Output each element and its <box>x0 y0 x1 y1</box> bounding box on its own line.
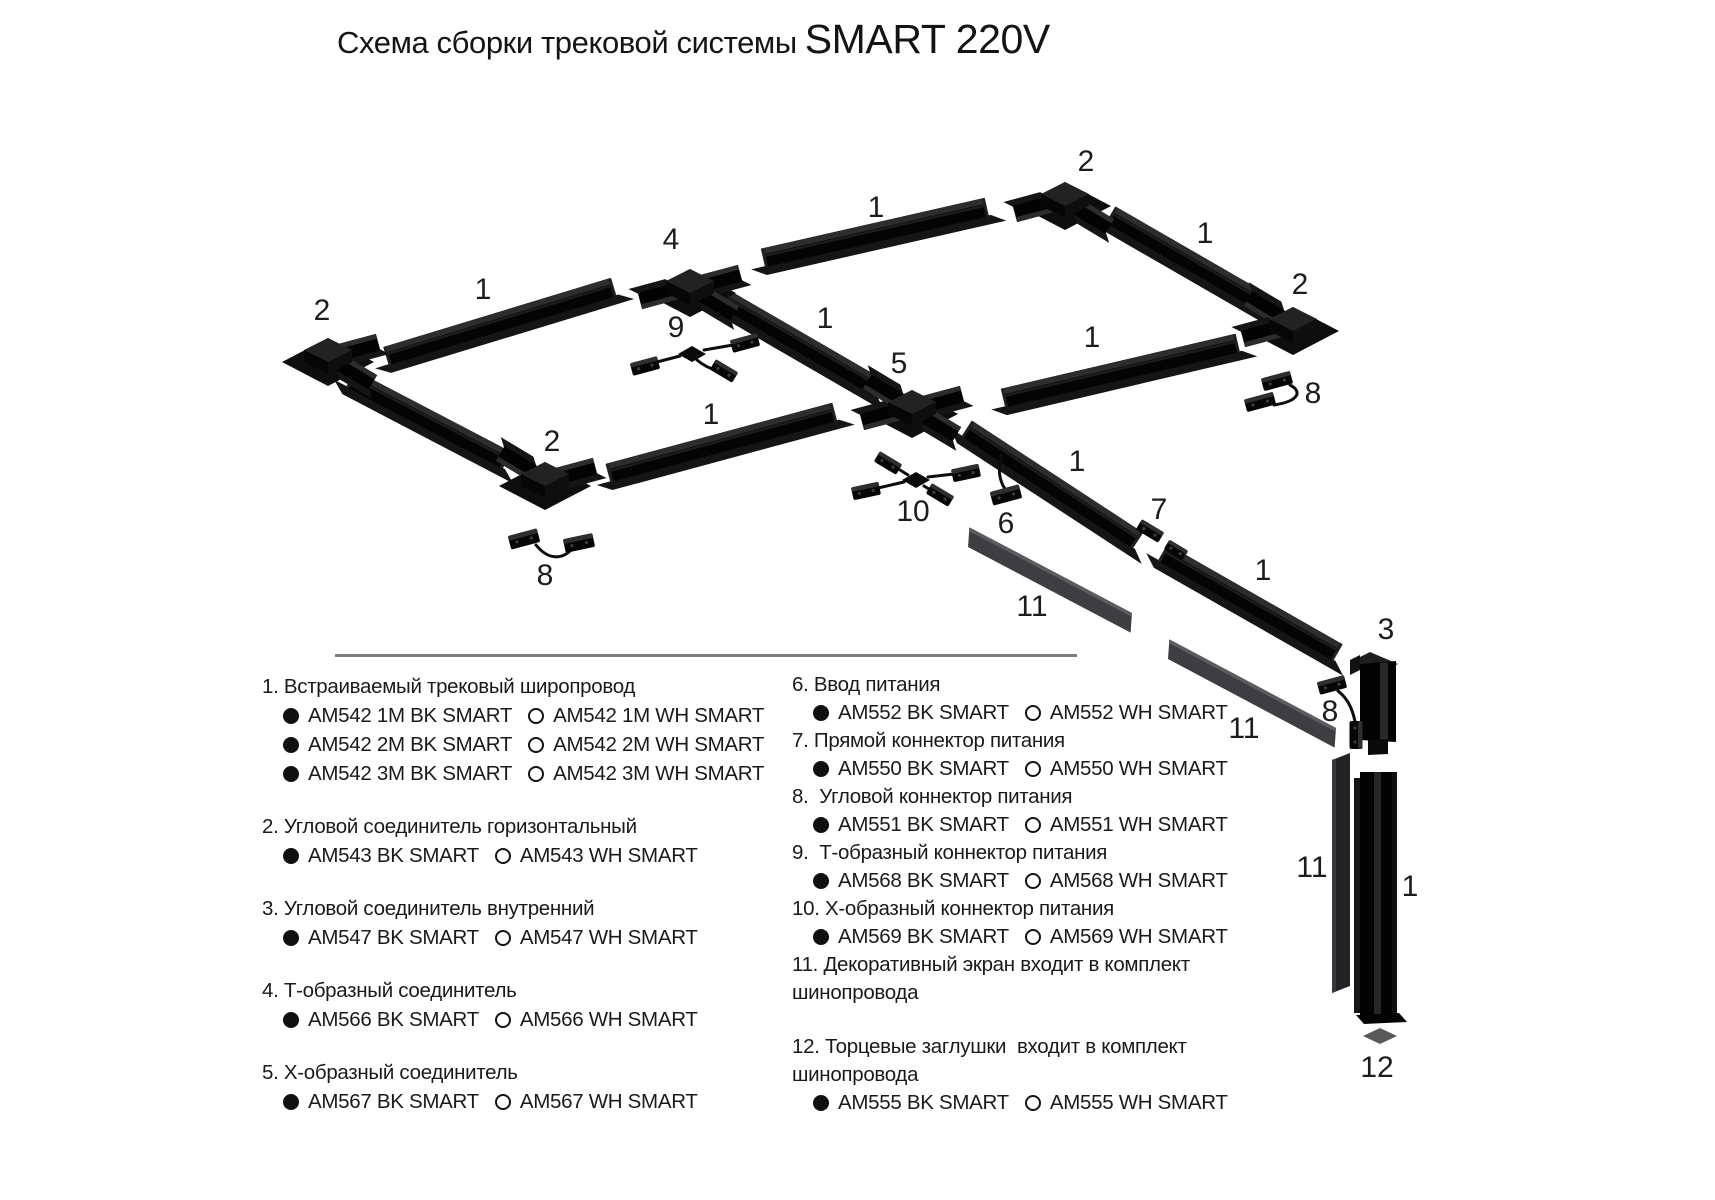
black-color-swatch-icon <box>813 929 829 945</box>
legend-column-right: 6. Ввод питанияAM552 BK SMARTAM552 WH SM… <box>792 671 1228 1117</box>
product-code: AM542 3M WH SMART <box>553 759 764 788</box>
product-variant-row: AM547 BK SMARTAM547 WH SMART <box>262 923 764 952</box>
product-variant: AM542 3M WH SMART <box>528 759 764 788</box>
black-color-swatch-icon <box>283 930 299 946</box>
product-code: AM568 BK SMART <box>838 867 1009 895</box>
track-body <box>1160 545 1341 660</box>
white-color-swatch-icon <box>495 1012 511 1028</box>
track-top-face <box>970 422 1141 537</box>
decorative-screen-vertical <box>1332 753 1350 993</box>
track-top-face <box>1114 207 1273 302</box>
product-code: AM542 1M WH SMART <box>553 701 764 730</box>
diagram-callout: 10 <box>896 495 929 528</box>
power-connector-box <box>563 533 595 553</box>
product-code: AM566 WH SMART <box>520 1005 698 1034</box>
product-variant: AM555 BK SMART <box>813 1089 1009 1117</box>
product-variant: AM542 1M BK SMART <box>283 701 512 730</box>
track-flange <box>375 290 634 377</box>
product-variant: AM555 WH SMART <box>1025 1089 1228 1117</box>
power-connector-box <box>851 482 881 501</box>
diagram-callout: 6 <box>998 507 1015 540</box>
product-code: AM550 BK SMART <box>838 755 1009 783</box>
product-code: AM567 WH SMART <box>520 1087 698 1116</box>
legend-divider <box>335 654 1077 657</box>
product-variant: AM550 WH SMART <box>1025 755 1228 783</box>
legend-item-title: 2. Угловой соединитель горизонтальный <box>262 812 764 841</box>
product-code: AM542 2M BK SMART <box>308 730 512 759</box>
legend-item: 9. Т-образный коннектор питанияAM568 BK … <box>792 839 1228 895</box>
product-variant: AM568 BK SMART <box>813 867 1009 895</box>
diagram-callout: 1 <box>703 398 720 431</box>
legend-item: 1. Встраиваемый трековый широпроводAM542… <box>262 672 764 788</box>
legend-item: 12. Торцевые заглушки входит в комплектш… <box>792 1033 1228 1117</box>
black-color-swatch-icon <box>813 705 829 721</box>
power-cable <box>878 482 904 488</box>
diagram-callout: 2 <box>1078 145 1095 178</box>
product-code: AM568 WH SMART <box>1050 867 1228 895</box>
track-flange <box>330 380 517 484</box>
product-variant-row: AM543 BK SMARTAM543 WH SMART <box>262 841 764 870</box>
legend-column-left: 1. Встраиваемый трековый широпроводAM542… <box>262 672 764 1140</box>
product-code: AM542 1M BK SMART <box>308 701 512 730</box>
diagram-callout: 8 <box>1322 695 1339 728</box>
diagram-callout: 1 <box>1084 321 1101 354</box>
bracket-wing <box>1350 655 1360 675</box>
product-variant-row: AM550 BK SMARTAM550 WH SMART <box>792 755 1228 783</box>
diagram-callout: 3 <box>1378 613 1395 646</box>
black-color-swatch-icon <box>283 766 299 782</box>
track-flange <box>597 416 855 494</box>
product-code: AM567 BK SMART <box>308 1087 479 1116</box>
white-color-swatch-icon <box>1025 929 1041 945</box>
product-code: AM555 WH SMART <box>1050 1089 1228 1117</box>
black-color-swatch-icon <box>283 1012 299 1028</box>
legend-item-title: 9. Т-образный коннектор питания <box>792 839 1228 867</box>
black-color-swatch-icon <box>813 873 829 889</box>
black-color-swatch-icon <box>283 1094 299 1110</box>
product-code: AM555 BK SMART <box>838 1089 1009 1117</box>
power-connector-box <box>630 356 660 376</box>
product-variant-row: AM551 BK SMARTAM551 WH SMART <box>792 811 1228 839</box>
legend-item-title: 10. Х-образный коннектор питания <box>792 895 1228 923</box>
product-variant: AM566 BK SMART <box>283 1005 479 1034</box>
diagram-callout: 12 <box>1360 1051 1393 1084</box>
black-color-swatch-icon <box>283 848 299 864</box>
diagram-callout: 1 <box>817 302 834 335</box>
power-connector-box <box>926 483 954 507</box>
track-edge <box>1392 772 1397 1017</box>
power-connector-box <box>1244 392 1276 412</box>
white-color-swatch-icon <box>495 930 511 946</box>
product-code: AM543 WH SMART <box>520 841 698 870</box>
product-variant-row: AM542 2M BK SMARTAM542 2M WH SMART <box>262 730 764 759</box>
legend-item-title: 4. Т-образный соединитель <box>262 976 764 1005</box>
diagram-callout: 11 <box>1016 590 1047 623</box>
product-variant: AM552 WH SMART <box>1025 699 1228 727</box>
diagram-callout: 2 <box>544 425 561 458</box>
product-code: AM547 BK SMART <box>308 923 479 952</box>
track-groove <box>969 427 1138 539</box>
product-variant-row: AM566 BK SMARTAM566 WH SMART <box>262 1005 764 1034</box>
white-color-swatch-icon <box>1025 817 1041 833</box>
product-variant: AM567 WH SMART <box>495 1087 698 1116</box>
power-connector-box <box>1261 371 1293 391</box>
track-groove <box>352 377 506 459</box>
white-color-swatch-icon <box>1025 705 1041 721</box>
bracket-body <box>1360 661 1396 742</box>
white-color-swatch-icon <box>1025 1095 1041 1111</box>
product-variant: AM543 WH SMART <box>495 841 698 870</box>
box-top <box>1358 721 1362 749</box>
product-variant-row: AM569 BK SMARTAM569 WH SMART <box>792 923 1228 951</box>
diagram-callout: 1 <box>1255 554 1272 587</box>
legend-item-title: 11. Декоративный экран входит в комплект <box>792 951 1228 979</box>
diagram-callout: 1 <box>475 273 492 306</box>
box-screw <box>1353 740 1356 743</box>
legend-item-title: шинопровода <box>792 1061 1228 1089</box>
product-variant-row: AM552 BK SMARTAM552 WH SMART <box>792 699 1228 727</box>
product-variant: AM542 1M WH SMART <box>528 701 764 730</box>
diagram-callout: 2 <box>1292 268 1309 301</box>
track-segment-vertical <box>1354 772 1407 1024</box>
black-color-swatch-icon <box>813 1095 829 1111</box>
product-variant: AM543 BK SMART <box>283 841 479 870</box>
black-color-swatch-icon <box>283 708 299 724</box>
white-color-swatch-icon <box>495 848 511 864</box>
legend-item: 7. Прямой коннектор питанияAM550 BK SMAR… <box>792 727 1228 783</box>
legend-item: 8. Угловой коннектор питанияAM551 BK SMA… <box>792 783 1228 839</box>
diagram-callout: 8 <box>1305 377 1322 410</box>
track-groove <box>1374 772 1381 1017</box>
product-code: AM569 BK SMART <box>838 923 1009 951</box>
product-code: AM552 BK SMART <box>838 699 1009 727</box>
power-cable <box>657 356 680 362</box>
diagram-callout: 5 <box>891 347 908 380</box>
power-cable <box>928 474 954 477</box>
product-code: AM542 2M WH SMART <box>553 730 764 759</box>
track-body <box>1108 207 1273 314</box>
track-groove <box>1113 213 1270 305</box>
black-color-swatch-icon <box>813 761 829 777</box>
product-code: AM566 BK SMART <box>308 1005 479 1034</box>
product-variant: AM567 BK SMART <box>283 1087 479 1116</box>
product-variant-row: AM568 BK SMARTAM568 WH SMART <box>792 867 1228 895</box>
track-groove <box>387 285 612 355</box>
legend-item: 2. Угловой соединитель горизонтальныйAM5… <box>262 812 764 870</box>
black-color-swatch-icon <box>283 737 299 753</box>
product-variant: AM568 WH SMART <box>1025 867 1228 895</box>
track-groove <box>1165 551 1338 651</box>
legend-item-title: 1. Встраиваемый трековый широпровод <box>262 672 764 701</box>
legend-item-title: 3. Угловой соединитель внутренний <box>262 894 764 923</box>
product-variant: AM542 2M BK SMART <box>283 730 512 759</box>
product-variant: AM551 BK SMART <box>813 811 1009 839</box>
power-connector-box <box>710 359 738 383</box>
end-cap <box>1363 1028 1397 1044</box>
product-code: AM547 WH SMART <box>520 923 698 952</box>
product-variant-row: AM542 1M BK SMARTAM542 1M WH SMART <box>262 701 764 730</box>
track-flange <box>1090 215 1280 330</box>
white-color-swatch-icon <box>495 1094 511 1110</box>
diagram-callout: 9 <box>668 311 685 344</box>
power-cable <box>1274 385 1297 405</box>
diagram-callout: 1 <box>1069 445 1086 478</box>
track-foot <box>1356 1013 1407 1024</box>
track-segment <box>987 330 1257 418</box>
legend-item-title: 8. Угловой коннектор питания <box>792 783 1228 811</box>
product-variant: AM552 BK SMART <box>813 699 1009 727</box>
diagram-callout: 2 <box>314 294 331 327</box>
product-variant-row: AM542 3M BK SMARTAM542 3M WH SMART <box>262 759 764 788</box>
power-connector-box <box>990 484 1023 505</box>
power-connector-box <box>1317 675 1347 695</box>
product-code: AM551 BK SMART <box>838 811 1009 839</box>
legend-item: 6. Ввод питанияAM552 BK SMARTAM552 WH SM… <box>792 671 1228 727</box>
track-segment <box>592 399 855 494</box>
legend-item: 4. Т-образный соединительAM566 BK SMARTA… <box>262 976 764 1034</box>
white-color-swatch-icon <box>528 737 544 753</box>
product-variant: AM542 3M BK SMART <box>283 759 512 788</box>
diagram-callout: 7 <box>1151 493 1168 526</box>
diagram-callout: 11 <box>1296 851 1327 884</box>
legend-item-title: 12. Торцевые заглушки входит в комплект <box>792 1033 1228 1061</box>
product-code: AM542 3M BK SMART <box>308 759 512 788</box>
legend-item-title: 5. Х-образный соединитель <box>262 1058 764 1087</box>
product-variant: AM569 BK SMART <box>813 923 1009 951</box>
white-color-swatch-icon <box>1025 761 1041 777</box>
track-flange <box>1354 778 1360 1013</box>
power-connector-box <box>951 464 981 483</box>
product-code: AM569 WH SMART <box>1050 923 1228 951</box>
power-cable <box>704 345 733 350</box>
product-variant: AM551 WH SMART <box>1025 811 1228 839</box>
diagram-callout: 4 <box>663 223 680 256</box>
legend-item-title: 7. Прямой коннектор питания <box>792 727 1228 755</box>
legend-item: 3. Угловой соединитель внутреннийAM547 B… <box>262 894 764 952</box>
legend-item: 5. Х-образный соединительAM567 BK SMARTA… <box>262 1058 764 1116</box>
product-variant: AM542 2M WH SMART <box>528 730 764 759</box>
product-variant: AM550 BK SMART <box>813 755 1009 783</box>
product-variant-row: AM567 BK SMARTAM567 WH SMART <box>262 1087 764 1116</box>
screen-edge <box>1332 759 1336 994</box>
power-connector-box <box>874 451 902 475</box>
legend-item: 11. Декоративный экран входит в комплект… <box>792 951 1228 1007</box>
power-hub <box>678 346 706 362</box>
product-code: AM552 WH SMART <box>1050 699 1228 727</box>
diagram-callout: 11 <box>1228 712 1259 745</box>
product-variant: AM547 WH SMART <box>495 923 698 952</box>
product-variant: AM566 WH SMART <box>495 1005 698 1034</box>
product-code: AM543 BK SMART <box>308 841 479 870</box>
diagram-callout: 1 <box>868 191 885 224</box>
diagram-callout: 8 <box>537 559 554 592</box>
track-top-face <box>1166 545 1341 648</box>
corner-horizontal-connector <box>1003 182 1121 243</box>
diagram-callout: 1 <box>1197 217 1214 250</box>
legend-item-title: 6. Ввод питания <box>792 671 1228 699</box>
power-connector-box <box>1350 721 1363 749</box>
track-top-face <box>354 371 510 456</box>
product-variant-row: AM555 BK SMARTAM555 WH SMART <box>792 1089 1228 1117</box>
product-variant: AM547 BK SMART <box>283 923 479 952</box>
diagram-callout: 1 <box>1402 870 1419 903</box>
box-screw <box>1353 726 1356 729</box>
track-segment <box>370 273 634 377</box>
product-code: AM551 WH SMART <box>1050 811 1228 839</box>
legend-item-title: шинопровода <box>792 979 1228 1007</box>
legend-item: 10. Х-образный коннектор питанияAM569 BK… <box>792 895 1228 951</box>
product-code: AM550 WH SMART <box>1050 755 1228 783</box>
white-color-swatch-icon <box>528 766 544 782</box>
power-cable <box>900 470 908 475</box>
power-connector-box <box>730 333 760 353</box>
track-groove <box>609 410 833 473</box>
white-color-swatch-icon <box>528 708 544 724</box>
bracket-tab <box>1368 739 1388 755</box>
black-color-swatch-icon <box>813 817 829 833</box>
product-variant: AM569 WH SMART <box>1025 923 1228 951</box>
bracket-groove <box>1380 663 1388 742</box>
white-color-swatch-icon <box>1025 873 1041 889</box>
